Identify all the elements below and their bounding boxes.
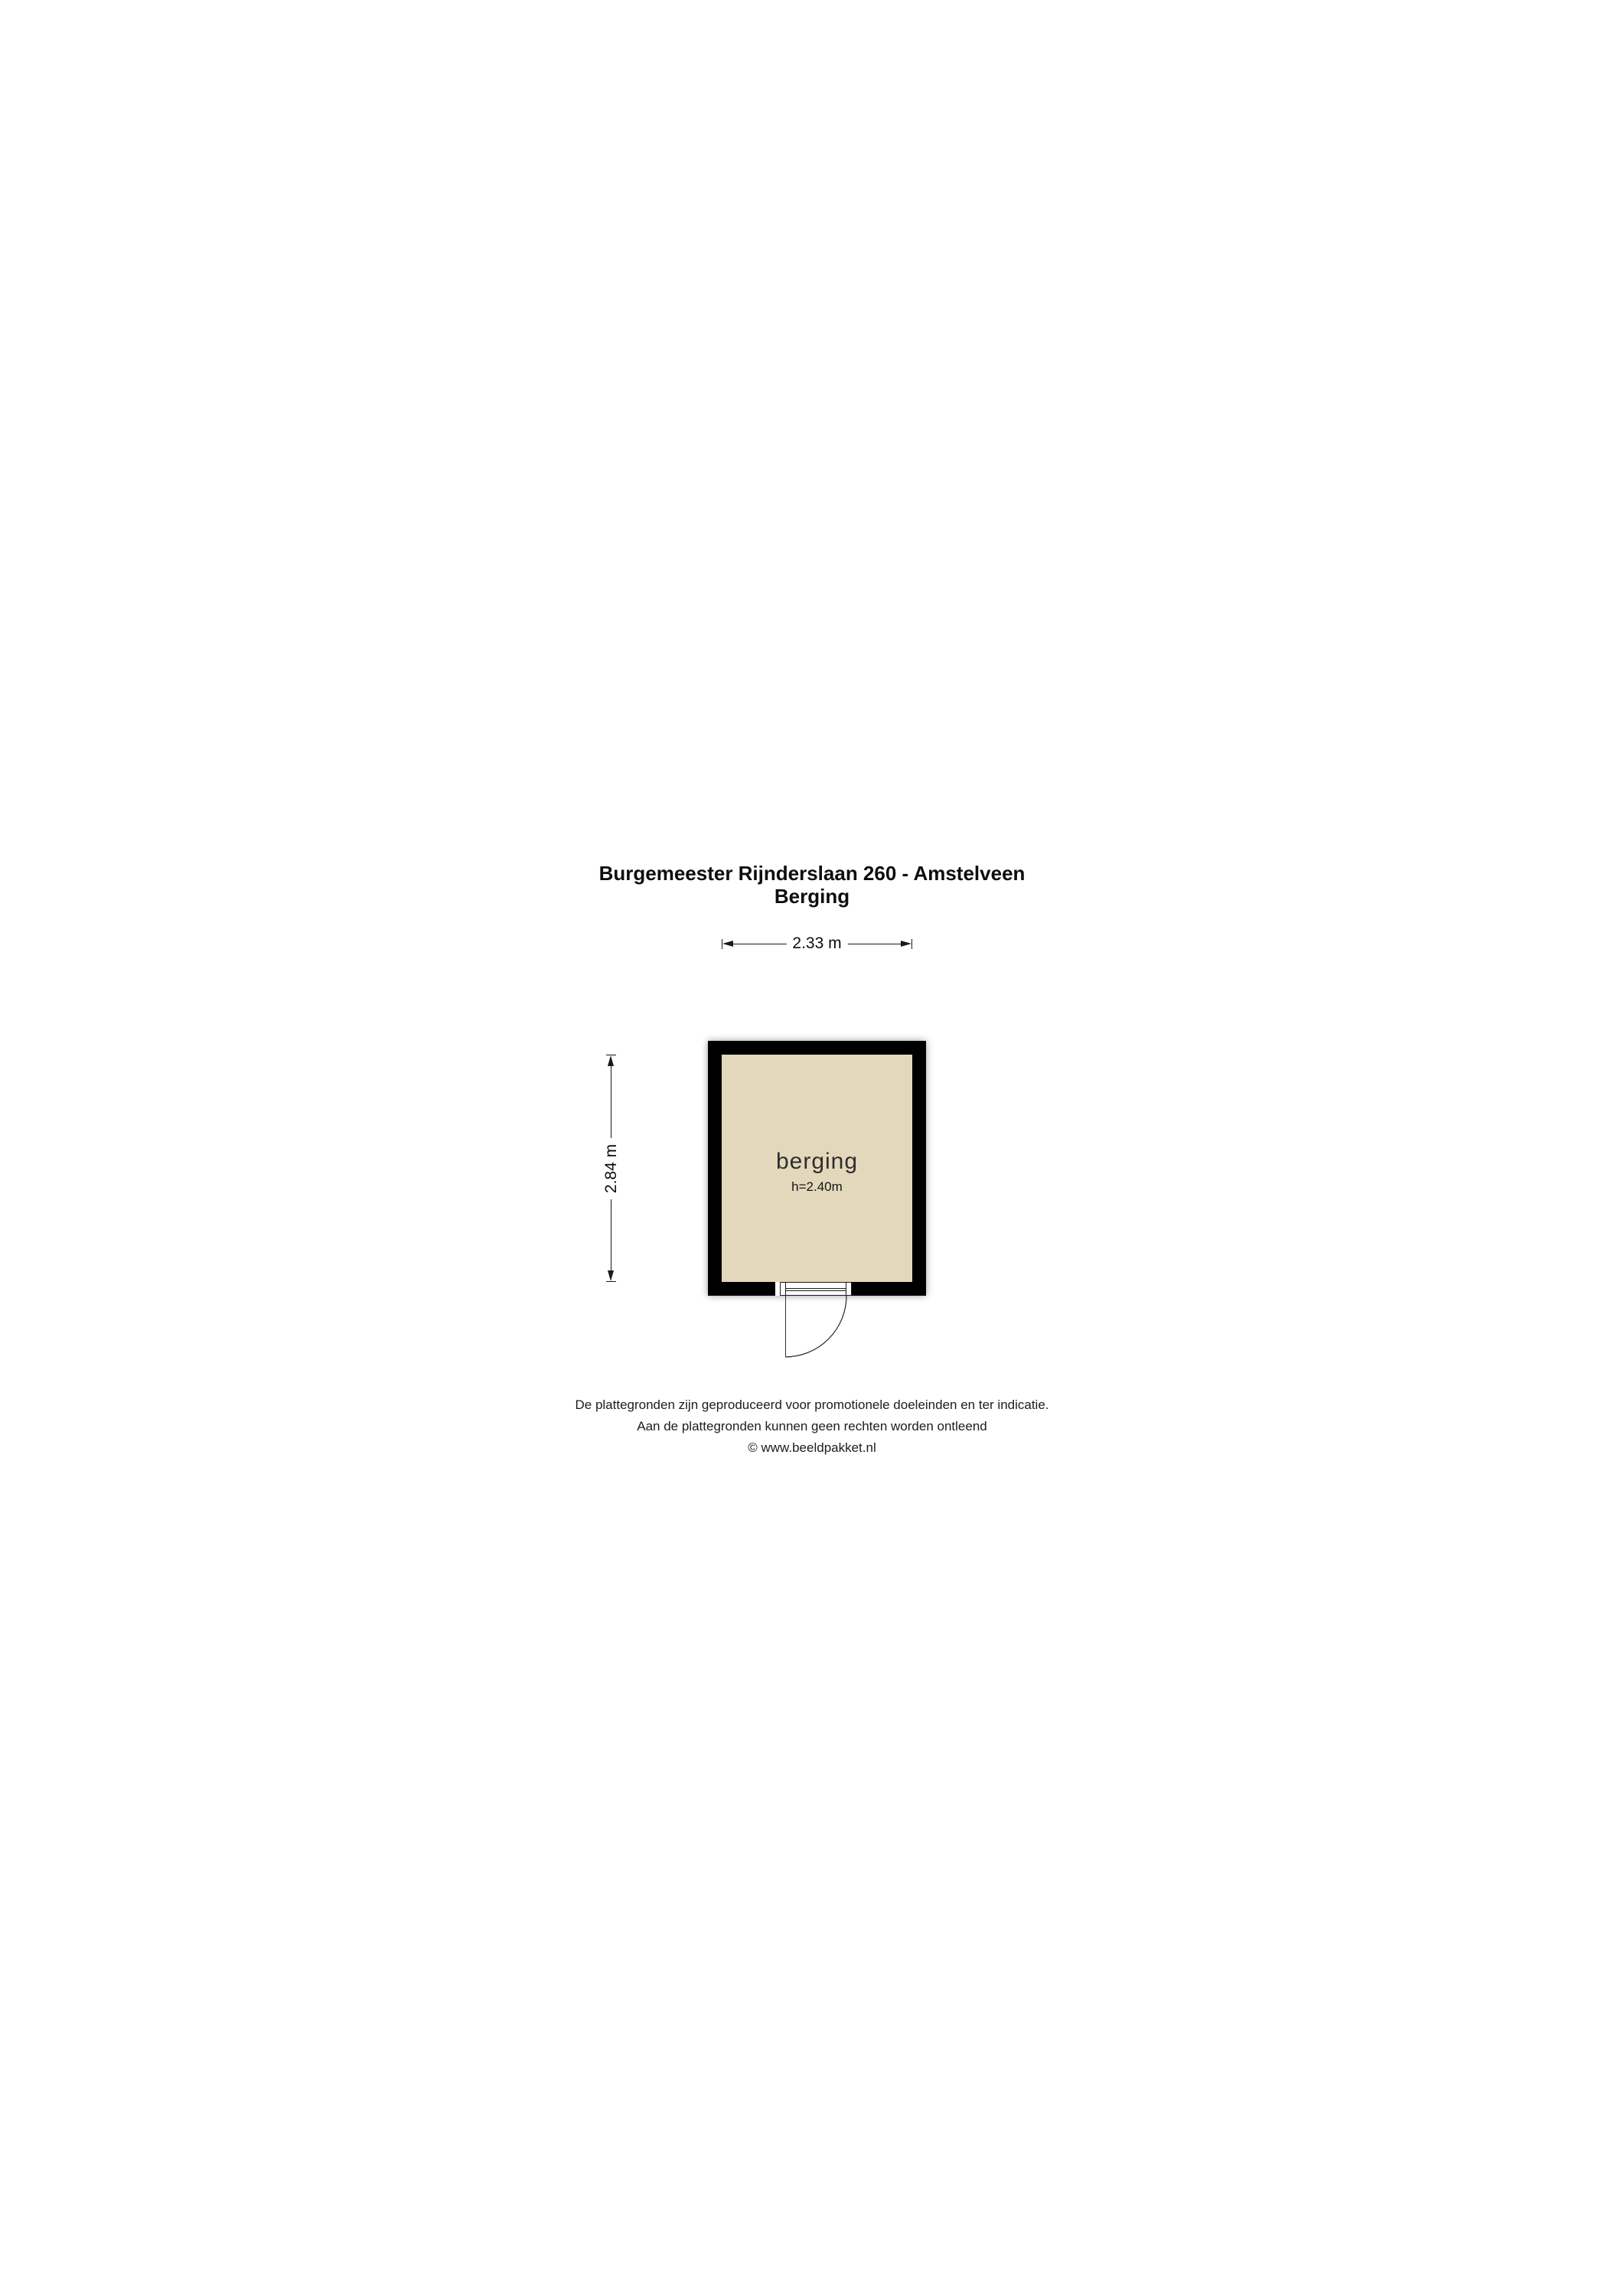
door-swing-arc — [781, 1293, 851, 1360]
room-ceiling-height-label: h=2.40m — [791, 1178, 843, 1196]
footer-disclaimer: De plattegronden zijn geproduceerd voor … — [0, 1394, 1624, 1459]
arrow-right-icon — [901, 941, 911, 947]
arrow-left-icon — [722, 941, 733, 947]
title-block: Burgemeester Rijnderslaan 260 - Amstelve… — [0, 862, 1624, 908]
room-walls: berging h=2.40m — [708, 1041, 926, 1296]
dimension-tick — [911, 939, 912, 949]
width-dimension-label: 2.33 m — [786, 934, 847, 953]
width-dimension: 2.33 m — [722, 939, 912, 949]
dimension-tick — [606, 1281, 616, 1282]
height-dimension: 2.84 m — [606, 1055, 616, 1282]
threshold-line — [781, 1288, 851, 1289]
arrow-down-icon — [608, 1270, 614, 1281]
page-title-address: Burgemeester Rijnderslaan 260 - Amstelve… — [0, 862, 1624, 885]
arrow-up-icon — [608, 1055, 614, 1066]
copyright-line: © www.beeldpakket.nl — [0, 1437, 1624, 1459]
disclaimer-line-1: De plattegronden zijn geproduceerd voor … — [0, 1394, 1624, 1416]
room-floor: berging h=2.40m — [722, 1055, 912, 1282]
page-title-subtitle: Berging — [0, 885, 1624, 908]
room-name-label: berging — [776, 1149, 858, 1175]
disclaimer-line-2: Aan de plattegronden kunnen geen rechten… — [0, 1416, 1624, 1437]
height-dimension-label: 2.84 m — [602, 1137, 621, 1199]
threshold-line — [781, 1290, 851, 1291]
floorplan-page: Burgemeester Rijnderslaan 260 - Amstelve… — [0, 0, 1624, 2296]
